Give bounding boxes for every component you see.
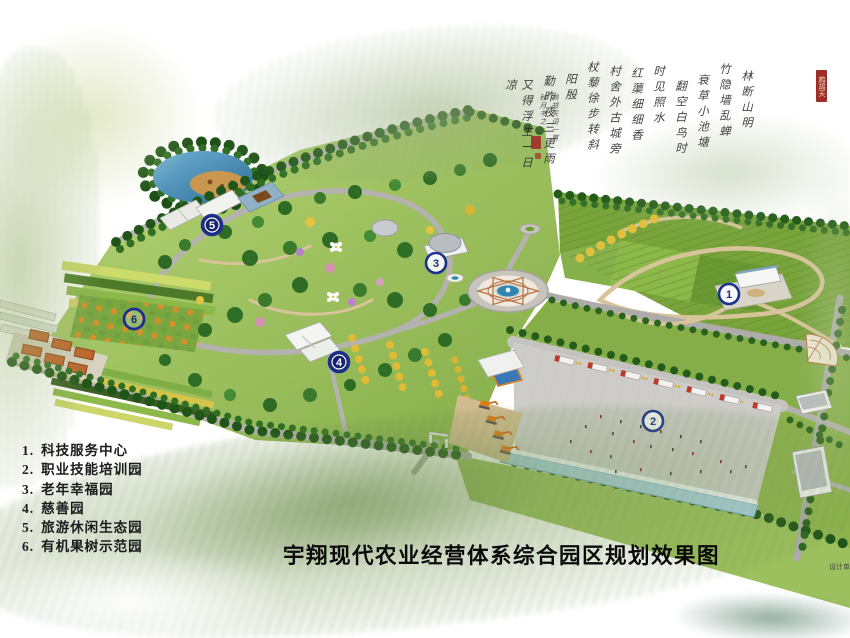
legend-item-number: 3. — [22, 482, 34, 497]
marker-3: 3 — [426, 253, 446, 273]
svg-text:2: 2 — [650, 416, 656, 428]
svg-text:4: 4 — [336, 357, 343, 369]
fountain-jet — [506, 288, 511, 293]
roundabout — [520, 224, 540, 234]
signature-column: 鹧鸪天词一首 — [550, 94, 560, 146]
poem-column: 杖藜徐步转斜 — [585, 61, 601, 180]
poem-column: 竹隐墙乱蝉 — [717, 63, 733, 180]
legend-item: 2.职业技能培训园 — [22, 460, 143, 479]
legend-item: 4.慈善园 — [22, 499, 143, 518]
poem-column: 阳殷 — [563, 73, 579, 180]
legend: 1.科技服务中心 2.职业技能培训园 3.老年幸福园 4.慈善园 5.旅游休闲生… — [22, 441, 143, 557]
poem-column: 村舍外古城旁 — [607, 65, 623, 180]
poem-title-seal: 鹧鸪天 — [816, 70, 827, 102]
legend-item: 3.老年幸福园 — [22, 480, 143, 499]
legend-item-number: 6. — [22, 539, 34, 554]
designer-note: 设计单 — [829, 562, 850, 572]
poem-column: 时见照水 — [651, 65, 667, 180]
signature-seal — [531, 136, 541, 149]
marker-5: 5 — [202, 215, 222, 235]
poem-column: 又得浮生一日凉 — [503, 79, 535, 180]
small-pond — [447, 274, 463, 282]
poem-column: 红蕖细细香 — [629, 67, 645, 180]
marker-1: 1 — [719, 284, 739, 304]
poster-canvas: 1 2 3 4 5 6 — [0, 0, 850, 638]
poem-column: 林断山明 — [739, 70, 755, 180]
legend-item-label: 职业技能培训园 — [41, 462, 143, 477]
legend-item-label: 有机果树示范园 — [41, 539, 143, 554]
poem-column: 衰草小池塘 — [695, 74, 711, 180]
legend-item-number: 2. — [22, 462, 34, 477]
marker-4: 4 — [329, 352, 349, 372]
legend-item-number: 1. — [22, 443, 34, 458]
legend-item-label: 旅游休闲生态园 — [41, 520, 143, 535]
svg-text:6: 6 — [131, 314, 137, 326]
page-title: 宇翔现代农业经营体系综合园区规划效果图 — [283, 539, 720, 570]
poem-column: 翻空白鸟时 — [673, 80, 689, 180]
legend-item-number: 5. — [22, 520, 34, 535]
legend-item: 5.旅游休闲生态园 — [22, 518, 143, 537]
legend-item-label: 老年幸福园 — [41, 482, 114, 497]
legend-item: 1.科技服务中心 — [22, 441, 143, 460]
legend-item-label: 慈善园 — [41, 501, 85, 516]
marker-6: 6 — [124, 309, 144, 329]
marker-2: 2 — [643, 411, 663, 431]
svg-text:5: 5 — [209, 220, 215, 232]
svg-text:1: 1 — [726, 289, 732, 301]
fountain-plaza — [468, 270, 548, 312]
flower-plaza — [327, 292, 339, 302]
flower-plaza — [330, 242, 342, 252]
legend-item: 6.有机果树示范园 — [22, 537, 143, 556]
signature-seal-small — [535, 153, 541, 159]
svg-text:3: 3 — [433, 258, 439, 270]
legend-item-number: 4. — [22, 501, 34, 516]
legend-item-label: 科技服务中心 — [41, 443, 128, 458]
